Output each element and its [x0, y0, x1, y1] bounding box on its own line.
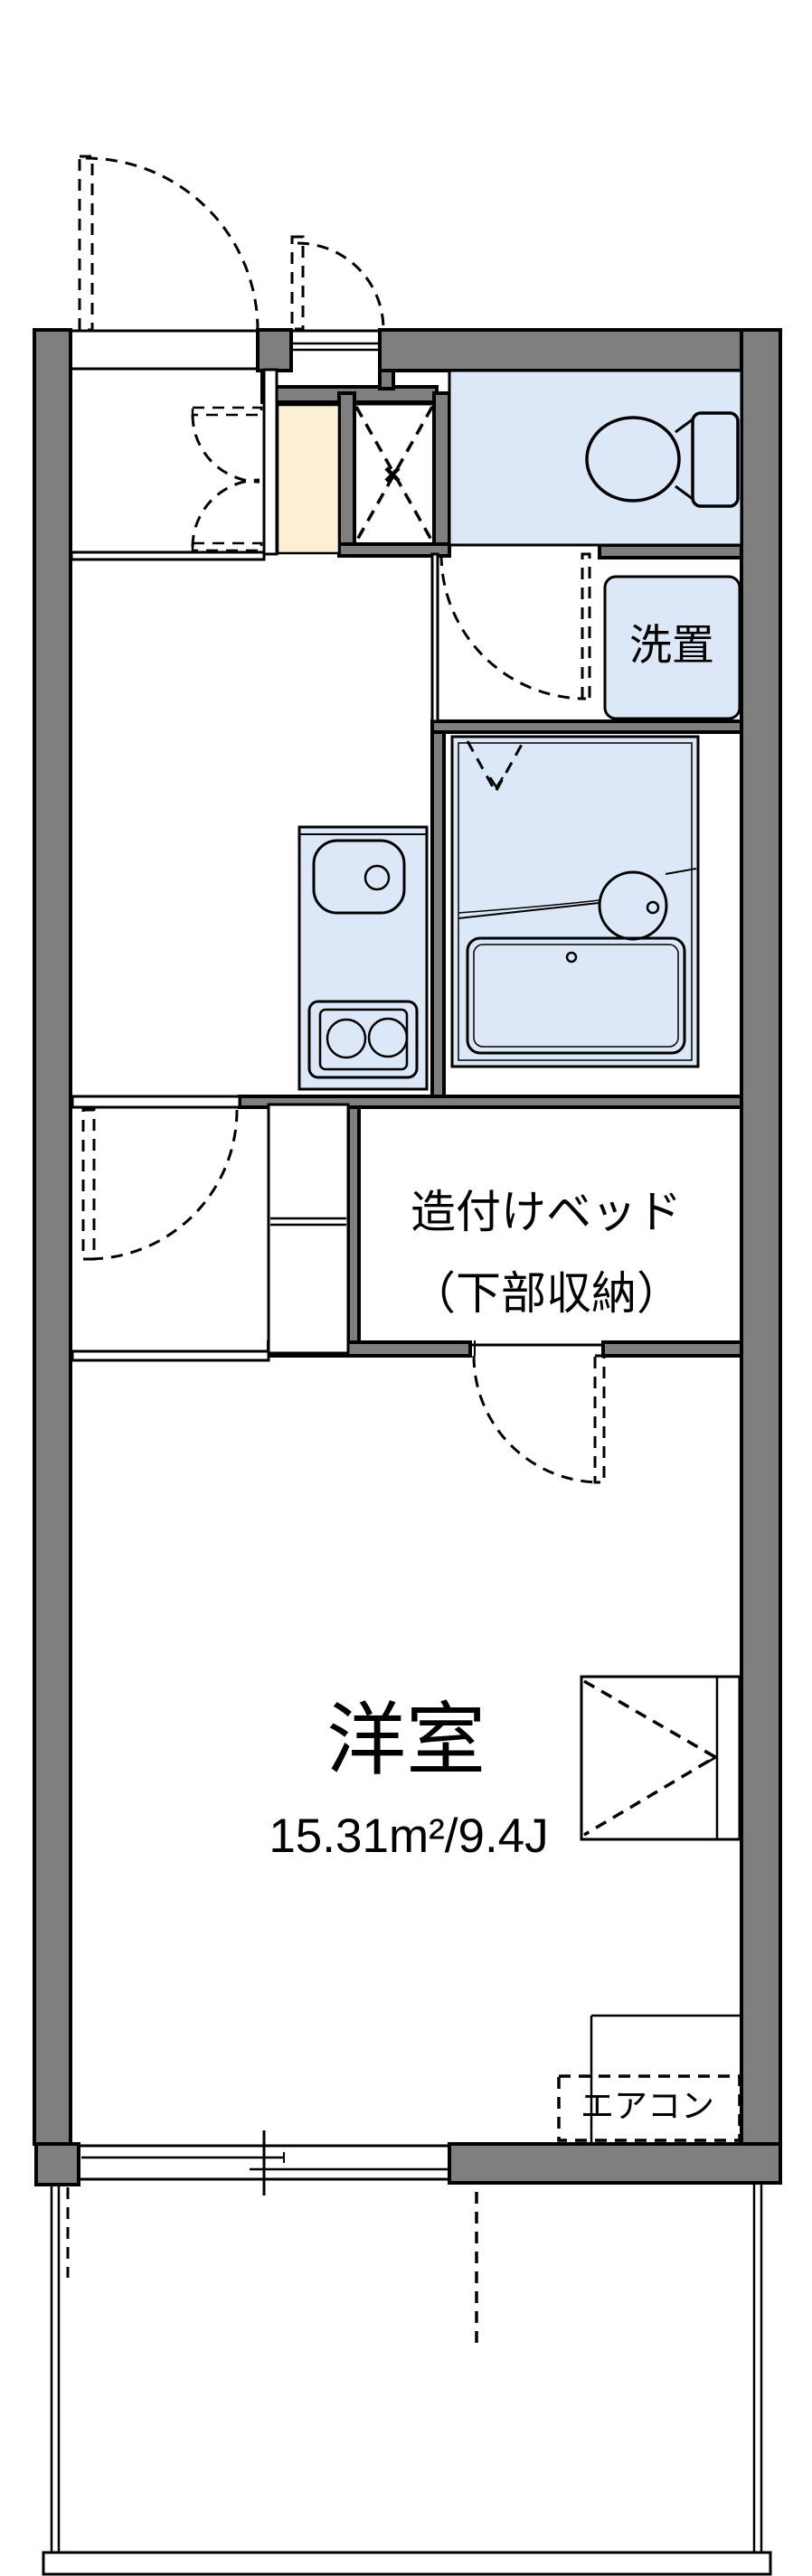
aircon-label: エアコン	[581, 2089, 714, 2126]
room-closet	[581, 1677, 740, 1839]
toilet-room	[449, 371, 741, 545]
entrance-openings	[71, 331, 380, 369]
washer-place-label: 洗置	[629, 622, 714, 669]
hall-door-leaf	[83, 1110, 94, 1259]
closet-door-arc-top	[193, 415, 260, 482]
bathroom	[452, 737, 698, 1067]
toilet-door-arc	[441, 554, 586, 699]
kitchen	[299, 827, 427, 1089]
built-in-bed-label-line1: 造付けベッド	[411, 1171, 682, 1253]
room-door-arc	[474, 1356, 600, 1482]
built-in-bed-label: 造付けベッド （下部収納）	[411, 1171, 682, 1334]
built-in-bed-label-line2: （下部収納）	[411, 1253, 682, 1334]
entry-door-leaf	[80, 156, 92, 330]
balcony-rail	[43, 2552, 770, 2574]
floorplan-drawing	[0, 0, 812, 2576]
shoe-box	[354, 404, 434, 544]
room-door-leaf	[595, 1356, 604, 1482]
entry-door-arc	[86, 158, 258, 330]
window	[79, 2130, 449, 2195]
front-door-leaf	[292, 237, 303, 329]
closet-door-leaf-bottom	[193, 543, 261, 550]
floorplan: 洗置 造付けベッド （下部収納） 洋室 15.31m²/9.4J エアコン	[0, 0, 812, 2576]
toilet-floor	[449, 371, 741, 545]
closet-door-arc-bottom	[193, 480, 260, 547]
western-room-name: 洋室	[326, 1697, 486, 1785]
toilet-door-leaf	[582, 554, 590, 699]
western-room-area: 15.31m²/9.4J	[269, 1810, 548, 1863]
bath-unit	[452, 737, 698, 1067]
genkan-floor	[278, 405, 339, 553]
hall-door-arc	[88, 1110, 237, 1259]
front-door-arc	[297, 243, 383, 329]
closet-door-leaf-top	[193, 408, 261, 415]
balcony	[43, 2185, 770, 2574]
